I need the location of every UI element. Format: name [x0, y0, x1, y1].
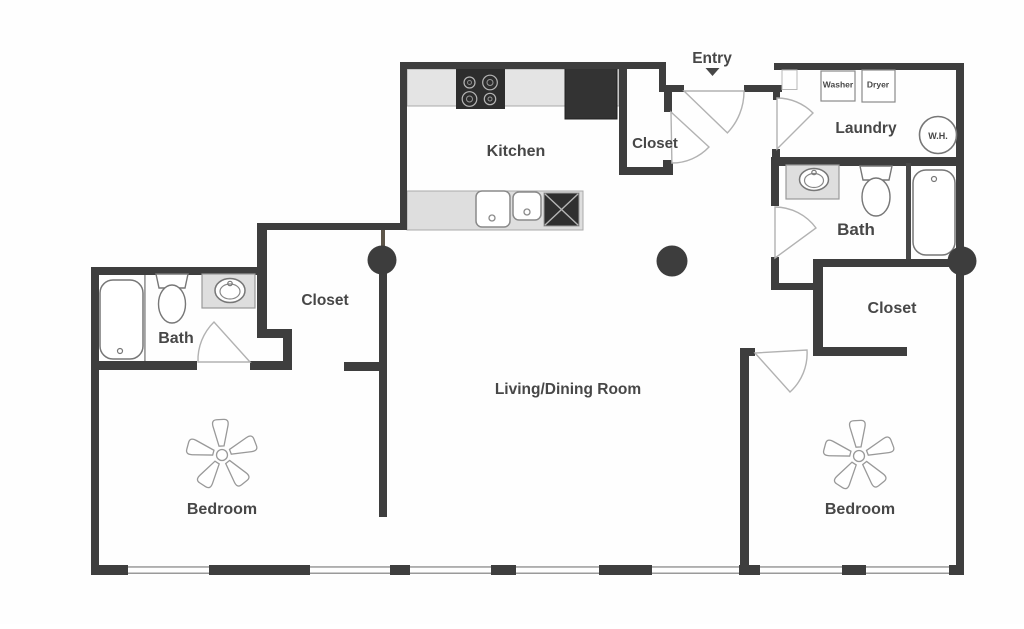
svg-text:Washer: Washer: [823, 80, 854, 90]
svg-text:Dryer: Dryer: [867, 80, 890, 90]
svg-text:Living/Dining Room: Living/Dining Room: [495, 381, 641, 398]
svg-text:Closet: Closet: [301, 292, 348, 309]
svg-text:Laundry: Laundry: [835, 120, 897, 137]
svg-text:Bath: Bath: [158, 330, 194, 347]
svg-text:Bedroom: Bedroom: [825, 501, 895, 518]
svg-text:Closet: Closet: [868, 300, 918, 317]
svg-text:Entry: Entry: [692, 50, 732, 67]
svg-text:Bedroom: Bedroom: [187, 501, 257, 518]
svg-text:Bath: Bath: [837, 220, 875, 239]
svg-text:W.H.: W.H.: [928, 131, 948, 141]
svg-text:Closet: Closet: [632, 135, 678, 152]
svg-text:Kitchen: Kitchen: [487, 143, 546, 160]
